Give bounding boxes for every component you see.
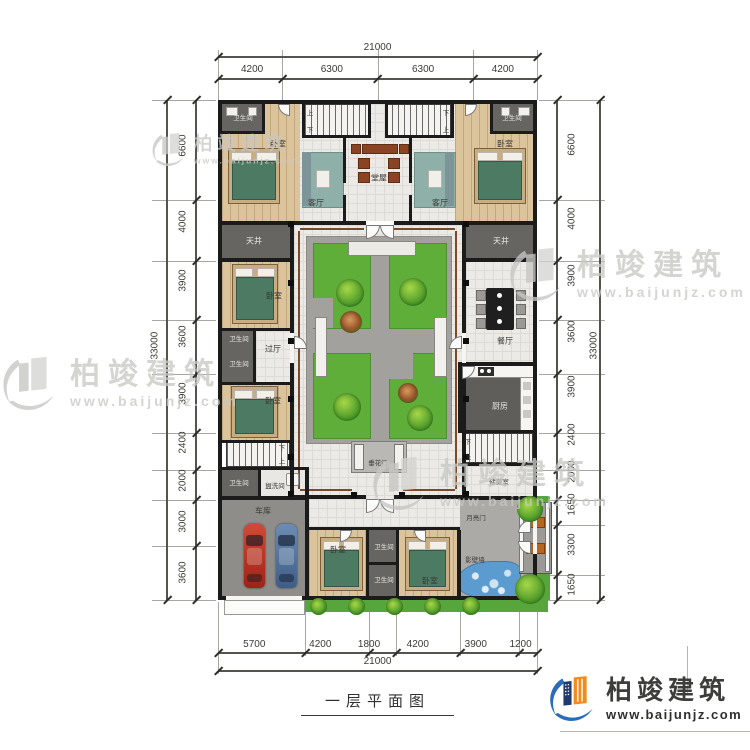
hall-table — [362, 144, 398, 154]
column — [463, 221, 469, 227]
room-label-bathroom: 卫生间 — [229, 333, 249, 343]
dim-left-segments: 6600 4000 3900 3600 3900 2400 2000 3000 … — [172, 100, 194, 600]
watermark: 柏竣建筑www.baijunjz.com — [0, 352, 239, 416]
dining-chair — [516, 290, 526, 301]
wall — [343, 195, 346, 223]
dim-top-total: 21000 — [218, 42, 537, 53]
room-label-bedroom: 卧室 — [497, 139, 513, 150]
wall — [451, 104, 454, 138]
dim-value: 3600 — [178, 562, 189, 584]
coffee-table — [316, 170, 330, 188]
wall — [458, 430, 537, 433]
dim-line — [218, 56, 537, 58]
wall — [462, 258, 537, 262]
stair-label-down: 下 — [443, 107, 450, 117]
wall — [457, 530, 461, 596]
column — [463, 338, 469, 344]
room-label-garage: 车库 — [255, 506, 271, 517]
dining-chair — [476, 290, 486, 301]
brand-logo-icon — [0, 352, 60, 416]
dim-line — [195, 100, 197, 600]
dim-value: 3900 — [178, 269, 189, 291]
hall-chair — [399, 144, 409, 154]
dim-top-segments: 4200 6300 6300 4200 — [218, 61, 537, 77]
wall — [409, 138, 412, 183]
dim-left-total: 33000 — [146, 100, 164, 600]
room-label-bathroom: 卫生间 — [229, 477, 249, 487]
garage-door-opening — [226, 596, 302, 600]
column — [463, 396, 469, 402]
dim-value: 2000 — [178, 469, 189, 491]
column — [351, 492, 357, 498]
tree-icon — [517, 496, 543, 522]
dim-value: 4000 — [178, 210, 189, 232]
brand-logo: 柏竣建筑 www.baijunjz.com — [544, 672, 742, 726]
dim-line — [218, 652, 537, 654]
railing — [403, 489, 455, 491]
column — [399, 492, 405, 498]
dim-value: 1800 — [350, 637, 388, 651]
column — [288, 491, 294, 497]
room-passage-floor — [256, 331, 290, 382]
room-label-kitchen: 厨房 — [492, 401, 508, 412]
stair-label-up: 上 — [307, 107, 314, 117]
room-label-bathroom: 卫生间 — [502, 112, 522, 122]
brand-name: 柏竣建筑 — [606, 677, 742, 703]
driveway — [224, 600, 305, 615]
bed-icon — [474, 148, 526, 204]
dining-chair — [516, 318, 526, 329]
tree-icon — [407, 405, 433, 431]
bush-icon — [424, 598, 441, 615]
wall — [369, 562, 396, 565]
bush-icon — [386, 598, 403, 615]
dim-value: 4200 — [388, 637, 447, 651]
wall — [218, 258, 294, 262]
dim-value: 4200 — [218, 61, 286, 77]
wall — [218, 467, 305, 470]
tree-icon — [336, 279, 364, 307]
column — [288, 280, 294, 286]
dim-value: 2400 — [178, 431, 189, 453]
water-feature — [457, 561, 521, 598]
brand-url: www.baijunjz.com — [606, 708, 742, 721]
bush-icon — [348, 598, 365, 615]
dim-value: 4000 — [567, 207, 578, 229]
room-label-bathroom: 卫生间 — [229, 358, 249, 368]
wall — [218, 131, 265, 134]
tree-icon — [398, 383, 418, 403]
dim-value: 3900 — [178, 382, 189, 404]
dim-value: 6600 — [178, 134, 189, 156]
column — [288, 221, 294, 227]
room-label-flower-gate: 垂花门 — [368, 457, 388, 467]
wall — [343, 138, 346, 183]
dim-value: 3300 — [567, 533, 578, 555]
coffee-table — [428, 170, 442, 188]
room-label-bathroom: 卫生间 — [374, 574, 394, 584]
room-label-bedroom: 卧室 — [265, 396, 281, 407]
wall — [385, 135, 454, 138]
wall — [262, 104, 265, 134]
wall — [385, 104, 388, 138]
stove-icon — [478, 367, 494, 376]
wall — [458, 463, 537, 466]
room-label-moon-gate: 月亮门 — [466, 512, 486, 522]
flower-gate-post — [354, 444, 364, 470]
tree-icon — [399, 278, 427, 306]
wall — [490, 131, 537, 134]
wall — [305, 467, 309, 600]
room-label-bathroom: 卫生间 — [374, 541, 394, 551]
stair-label-up: 上 — [279, 455, 286, 465]
column — [463, 491, 469, 497]
drawing-title: 一层平面图 — [218, 690, 537, 711]
dim-value: 1650 — [567, 574, 578, 596]
room-label-bedroom: 卧室 — [270, 139, 286, 150]
bush-icon — [310, 598, 327, 615]
dim-value: 3900 — [447, 637, 504, 651]
railing — [298, 231, 300, 489]
dim-value: 3000 — [178, 510, 189, 532]
dim-extension-line — [152, 600, 216, 601]
tree-icon — [340, 311, 362, 333]
tree-icon — [333, 393, 361, 421]
flower-gate-post — [394, 444, 404, 470]
dim-right-total: 33000 — [585, 100, 603, 600]
dim-value: 2400 — [567, 424, 578, 446]
wall — [218, 100, 222, 600]
stair-label-up: 上 — [465, 451, 472, 461]
dim-extension-line — [539, 600, 605, 601]
dim-value: 4200 — [469, 61, 537, 77]
room-label-main-hall: 堂屋 — [371, 173, 387, 184]
brand-logo-icon — [544, 672, 598, 726]
dining-chair — [476, 304, 486, 315]
garden-bench — [434, 317, 447, 377]
dim-value: 6300 — [286, 61, 377, 77]
floorplan: 卫生间 卧室 上 下 客厅 堂屋 下 上 客厅 卧室 卫生间 天井 天井 卧室 … — [218, 100, 537, 600]
dining-chair — [476, 318, 486, 329]
watermark: 柏竣建筑www.baijunjz.com — [503, 243, 746, 307]
railing — [300, 228, 364, 230]
room-label-passage: 过厅 — [265, 344, 281, 355]
room-label-storage: 储藏室 — [489, 476, 509, 486]
railing — [391, 228, 455, 230]
bed-icon — [228, 148, 280, 204]
car-blue — [276, 524, 297, 588]
wall — [490, 104, 493, 134]
column — [288, 454, 294, 460]
hall-chair — [351, 144, 361, 154]
room-label-bathroom: 卫生间 — [233, 112, 253, 122]
car-red — [244, 524, 265, 588]
room-label-dining: 餐厅 — [497, 336, 513, 347]
crop-line — [560, 731, 750, 732]
hall-chair — [358, 158, 370, 169]
dining-table — [486, 288, 514, 330]
dim-value: 3600 — [567, 320, 578, 342]
wall — [258, 470, 261, 496]
wall — [302, 135, 370, 138]
dim-value: 4200 — [291, 637, 350, 651]
stairs-east — [462, 433, 533, 463]
dim-line — [166, 100, 168, 600]
moon-gate-opening — [533, 520, 537, 554]
column — [288, 396, 294, 402]
column — [463, 280, 469, 286]
dim-value: 2000 — [567, 461, 578, 483]
kitchen-counter — [520, 378, 534, 430]
stairs-top-left — [304, 104, 370, 138]
dim-bottom-segments: 5700 4200 1800 4200 3900 1200 — [218, 637, 537, 651]
dim-value: 3900 — [567, 265, 578, 287]
room-label-living: 客厅 — [308, 198, 324, 209]
dim-value: 5700 — [218, 637, 291, 651]
wall — [302, 104, 305, 138]
dim-value: 6300 — [378, 61, 469, 77]
floorplan-canvas: 21000 4200 6300 6300 4200 5700 4200 1800… — [0, 0, 750, 750]
wall — [253, 331, 256, 382]
room-label-bedroom: 卧室 — [330, 545, 346, 556]
room-label-living: 客厅 — [432, 198, 448, 209]
stair-label-down: 下 — [279, 442, 286, 452]
hall-chair — [388, 158, 400, 169]
dim-bottom-total: 21000 — [218, 656, 537, 667]
garden-path-notch — [388, 352, 413, 379]
wall — [409, 195, 412, 223]
dim-value: 1650 — [567, 493, 578, 515]
room-label-skywell: 天井 — [246, 236, 262, 247]
dim-value: 3900 — [567, 375, 578, 397]
stairs-top-right — [385, 104, 451, 138]
dim-value: 33000 — [589, 341, 600, 359]
room-label-laundry: 盥洗间 — [265, 480, 285, 490]
garden-pergola — [348, 241, 416, 256]
stair-label-down: 下 — [307, 124, 314, 134]
wall — [368, 104, 371, 138]
bed-icon — [231, 386, 278, 438]
wall — [218, 382, 290, 385]
room-label-bedroom: 卧室 — [266, 291, 282, 302]
entrance-gate-post — [545, 502, 550, 572]
dim-line — [218, 670, 537, 672]
dim-value: 6600 — [567, 133, 578, 155]
room-label-bedroom: 卧室 — [422, 576, 438, 587]
drawing-title-text: 一层平面图 — [301, 693, 454, 716]
garden-bench — [315, 317, 327, 377]
hall-chair — [388, 172, 400, 183]
railing — [455, 231, 457, 489]
dim-value: 33000 — [150, 341, 161, 359]
stair-label-up: 上 — [443, 124, 450, 134]
room-label-skywell: 天井 — [493, 236, 509, 247]
dining-chair — [516, 304, 526, 315]
wall — [396, 530, 399, 596]
wall — [305, 527, 460, 530]
room-label-screen-wall: 影壁墙 — [465, 554, 485, 564]
hall-chair — [358, 172, 370, 183]
dim-right-segments: 6600 4000 3900 3600 3900 2400 2000 1650 … — [561, 100, 583, 600]
dim-value: 3600 — [178, 325, 189, 347]
bush-icon — [462, 597, 480, 615]
tree-icon — [515, 574, 545, 604]
stair-label-down: 下 — [465, 436, 472, 446]
